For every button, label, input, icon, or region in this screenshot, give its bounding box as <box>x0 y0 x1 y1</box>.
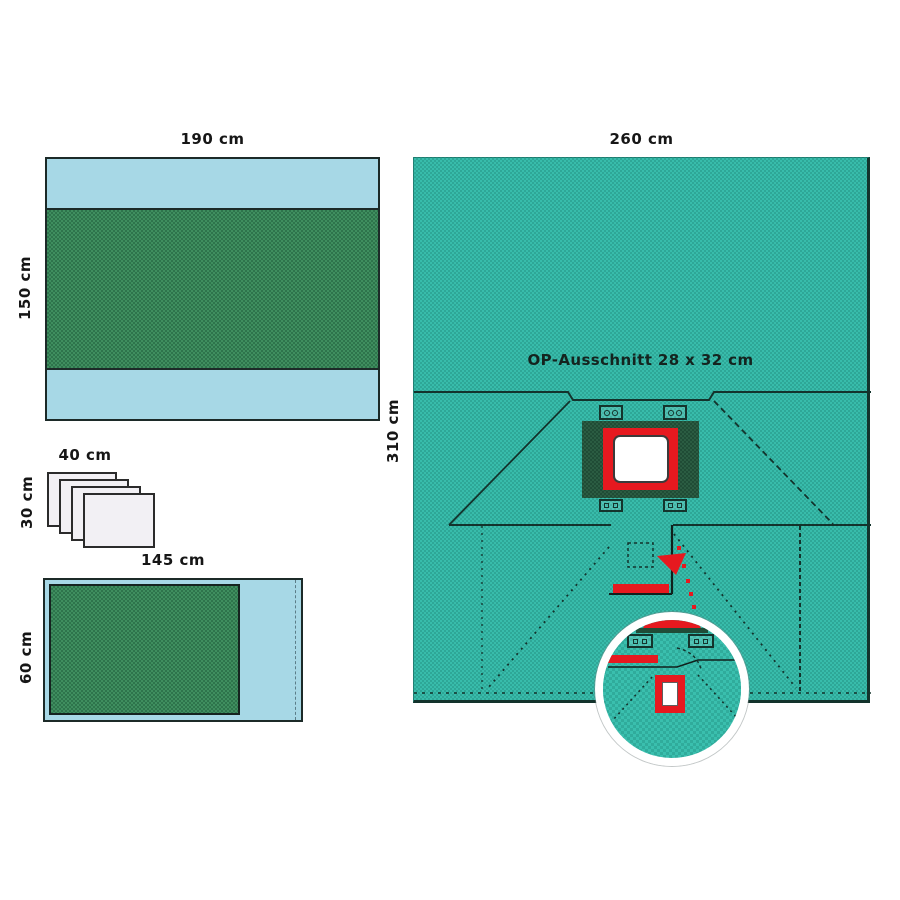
side-drape-width-label: 145 cm <box>43 551 303 569</box>
fixation-tab <box>663 405 687 420</box>
flat-drape-absorbent-zone <box>47 208 378 370</box>
aperture-label: OP-Ausschnitt 28 x 32 cm <box>414 351 867 369</box>
towel-stack-width-label: 40 cm <box>45 446 125 464</box>
fixation-tab <box>599 405 623 420</box>
flat-drape-height-label: 150 cm <box>16 248 38 328</box>
op-aperture-window <box>613 435 669 483</box>
flat-drape-diagram <box>45 157 380 421</box>
magnifier-detail-circle <box>595 612 749 766</box>
towel-stack-height-label: 30 cm <box>18 472 40 532</box>
main-drape-width-label: 260 cm <box>413 130 870 148</box>
adhesive-strip <box>613 584 669 593</box>
side-drape-absorbent-zone <box>49 584 240 715</box>
detail-aperture-window <box>662 682 678 706</box>
main-drape-height-label: 310 cm <box>384 395 406 467</box>
flat-drape-width-label: 190 cm <box>45 130 380 148</box>
side-drape-diagram <box>43 578 303 722</box>
drape-set-diagram: 190 cm 150 cm 40 cm 30 cm 145 cm 60 cm 2… <box>0 0 900 900</box>
side-drape-perforation-line <box>295 580 296 720</box>
detail-aperture <box>655 675 685 713</box>
magnifier-content <box>603 620 741 758</box>
incise-film-panel <box>582 421 699 498</box>
fixation-tab <box>599 499 623 512</box>
red-arrow-icon <box>657 553 686 575</box>
aperture-red-frame <box>603 428 678 490</box>
side-drape-height-label: 60 cm <box>17 626 39 688</box>
fixation-tab <box>663 499 687 512</box>
towel-sheet <box>83 493 155 548</box>
